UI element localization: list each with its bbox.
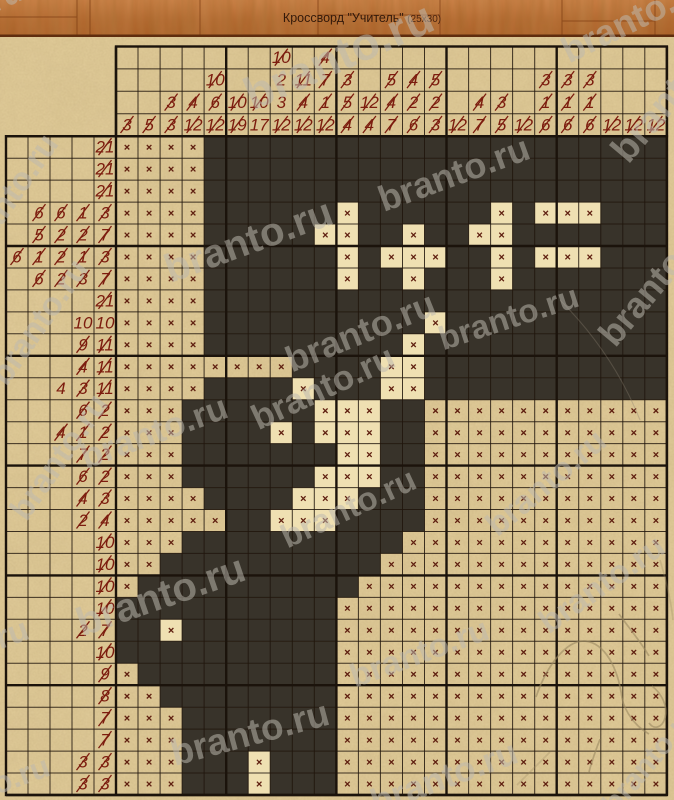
svg-text:10: 10 (96, 313, 115, 332)
svg-text:10: 10 (74, 313, 93, 332)
svg-text:4: 4 (56, 379, 65, 398)
